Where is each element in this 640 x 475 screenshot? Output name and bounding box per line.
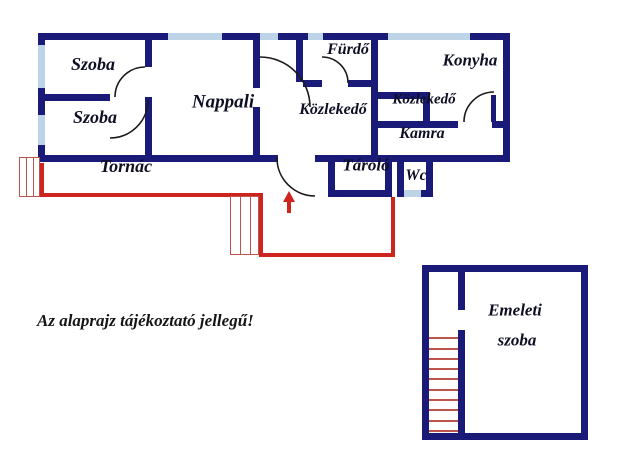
wall-nappali-kozlekedo bbox=[253, 107, 260, 155]
stair-step bbox=[429, 368, 458, 370]
porch-line bbox=[259, 193, 263, 257]
room-label-furdo: Fürdő bbox=[327, 42, 369, 58]
stair-step bbox=[429, 389, 458, 391]
room-label-szoba-top: Szoba bbox=[71, 55, 115, 73]
wall-tarolo-bottom bbox=[328, 190, 392, 197]
wall-between-szoba bbox=[45, 94, 110, 101]
wall-top-segment bbox=[323, 33, 388, 40]
window-segment bbox=[308, 33, 323, 40]
wall-emeleti-stair bbox=[458, 272, 465, 310]
wall-furdo-left bbox=[296, 40, 303, 82]
room-label-konyha: Konyha bbox=[443, 52, 498, 69]
room-label-kozlekedo-central: Közlekedő bbox=[299, 102, 367, 118]
room-label-szoba-bottom: Szoba bbox=[73, 108, 117, 126]
wall-emeleti-right bbox=[581, 265, 588, 440]
step-line bbox=[33, 157, 34, 197]
window-segment bbox=[404, 190, 421, 197]
wall-wc-right bbox=[426, 162, 433, 197]
door-arc-konyha bbox=[464, 92, 494, 122]
stair-step bbox=[429, 430, 458, 432]
porch-line bbox=[259, 253, 395, 257]
stair-step bbox=[429, 399, 458, 401]
wall-central-vertical bbox=[371, 40, 378, 155]
wall-emeleti-top bbox=[422, 265, 588, 272]
window-segment bbox=[168, 33, 222, 40]
stair-step bbox=[429, 409, 458, 411]
door-arc-szoba-top bbox=[115, 67, 145, 97]
porch-line bbox=[40, 163, 44, 197]
room-label-tarolo: Tároló bbox=[342, 157, 389, 174]
wall-left-segment bbox=[38, 33, 45, 45]
porch-steps-left bbox=[19, 157, 40, 197]
wall-emeleti-stair bbox=[458, 330, 465, 433]
wall-top-segment bbox=[38, 33, 168, 40]
wall-top-segment bbox=[278, 33, 308, 40]
step-line bbox=[240, 196, 241, 255]
step-line bbox=[26, 157, 27, 197]
window-segment bbox=[260, 33, 278, 40]
window-segment bbox=[388, 33, 470, 40]
room-label-nappali: Nappali bbox=[192, 93, 254, 112]
stair-step bbox=[429, 358, 458, 360]
floorplan-canvas: Szoba Szoba Nappali Fürdő Konyha Közleke… bbox=[0, 0, 640, 475]
wall-furdo-bottom bbox=[303, 80, 322, 87]
window-segment bbox=[38, 115, 45, 145]
step-line bbox=[250, 196, 251, 255]
room-label-wc: Wc bbox=[405, 168, 426, 184]
room-label-emeleti-line2: szoba bbox=[498, 332, 537, 349]
wall-left-segment bbox=[38, 88, 45, 115]
wall-emeleti-left bbox=[422, 265, 429, 440]
wall-right-segment bbox=[503, 33, 510, 162]
room-label-emeleti-line1: Emeleti bbox=[488, 302, 542, 319]
entrance-arrow-stem bbox=[287, 201, 291, 213]
room-label-kozlekedo-small: Közlekedő bbox=[392, 93, 455, 108]
porch-line bbox=[391, 197, 395, 257]
wall-wc-left bbox=[397, 162, 404, 197]
door-leaf-konyha bbox=[491, 95, 496, 122]
wall-kamra-top bbox=[492, 121, 503, 128]
room-label-tornac: Tornác bbox=[100, 157, 152, 175]
stair-step bbox=[429, 337, 458, 339]
wall-nappali-kozlekedo bbox=[253, 40, 260, 88]
door-arc-furdo bbox=[322, 57, 348, 83]
stair-step bbox=[429, 420, 458, 422]
disclaimer-note: Az alaprajz tájékoztató jellegű! bbox=[37, 311, 254, 331]
wall-bottom-segment bbox=[38, 155, 278, 162]
stair-step bbox=[429, 378, 458, 380]
wall-top-segment bbox=[222, 33, 260, 40]
porch-steps-bottom bbox=[230, 196, 259, 255]
wall-szoba-nappali bbox=[145, 97, 152, 155]
wall-szoba-nappali bbox=[145, 40, 152, 67]
wall-emeleti-bottom bbox=[422, 433, 588, 440]
stair-step bbox=[429, 348, 458, 350]
room-label-kamra: Kamra bbox=[399, 126, 444, 142]
window-segment bbox=[38, 45, 45, 88]
